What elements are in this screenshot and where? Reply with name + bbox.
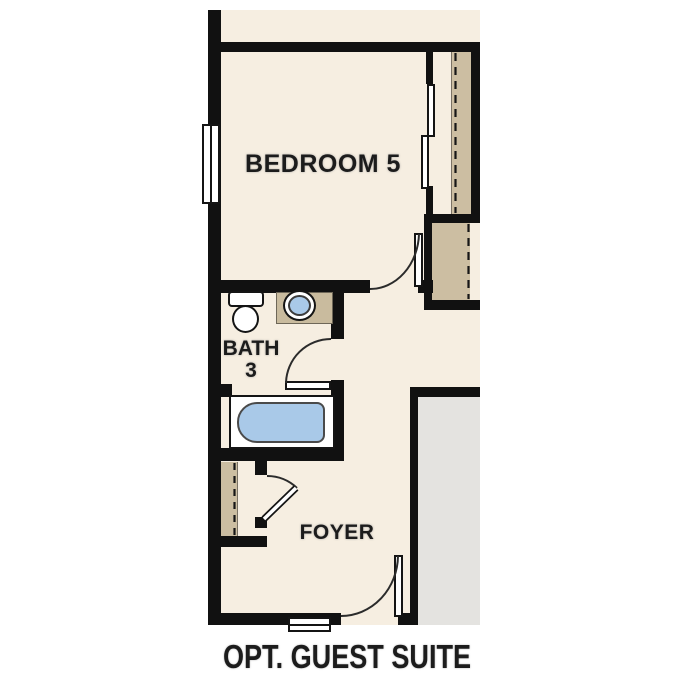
wall-foyer-closet-bottom	[208, 536, 267, 547]
bedroom-closet-floor	[451, 52, 472, 214]
wall-nook-bottom	[424, 300, 480, 310]
wall-closet-bottom	[424, 214, 480, 223]
wall-tub-bottom	[208, 448, 344, 461]
entry-door-leaf	[394, 555, 403, 617]
porch-step-line	[290, 624, 329, 626]
bathtub	[237, 402, 325, 443]
wall-nook-left	[424, 223, 432, 310]
wall-foyer-closet-jamb-bottom	[255, 517, 267, 528]
sink-basin-water	[288, 295, 311, 316]
bedroom-window	[202, 124, 220, 204]
plan-caption: OPT. GUEST SUITE	[216, 640, 478, 675]
wall-exterior-top	[410, 387, 480, 397]
wall-foyer-closet-jamb-top	[255, 461, 267, 475]
wall-right-upper	[471, 42, 480, 223]
window-mullion-line	[210, 126, 212, 202]
bedroom-label: BEDROOM 5	[223, 151, 423, 177]
bath-door-leaf	[285, 381, 331, 390]
bath-label-line1: BATH	[211, 338, 291, 359]
bath-label-line2: 3	[211, 360, 291, 381]
wall-exterior-left	[410, 387, 418, 625]
foyer-closet-floor	[221, 462, 238, 536]
foyer-label: FOYER	[287, 522, 387, 544]
exterior-adjacent-area	[418, 397, 480, 625]
toilet-bowl	[232, 305, 259, 333]
porch-steps	[288, 617, 331, 632]
linen-nook-floor	[432, 223, 470, 300]
bedroom-door-leaf	[414, 233, 423, 287]
closet-sliding-panel-outer	[427, 84, 435, 137]
wall-slider-jamb-top	[426, 52, 433, 84]
wall-left-outer	[208, 10, 221, 625]
wall-slider-jamb-bottom	[426, 186, 433, 214]
wall-bedroom-top	[208, 42, 480, 52]
floorplan-canvas: BEDROOM 5 BATH 3 FOYER OPT. GUEST SUITE	[0, 0, 687, 687]
